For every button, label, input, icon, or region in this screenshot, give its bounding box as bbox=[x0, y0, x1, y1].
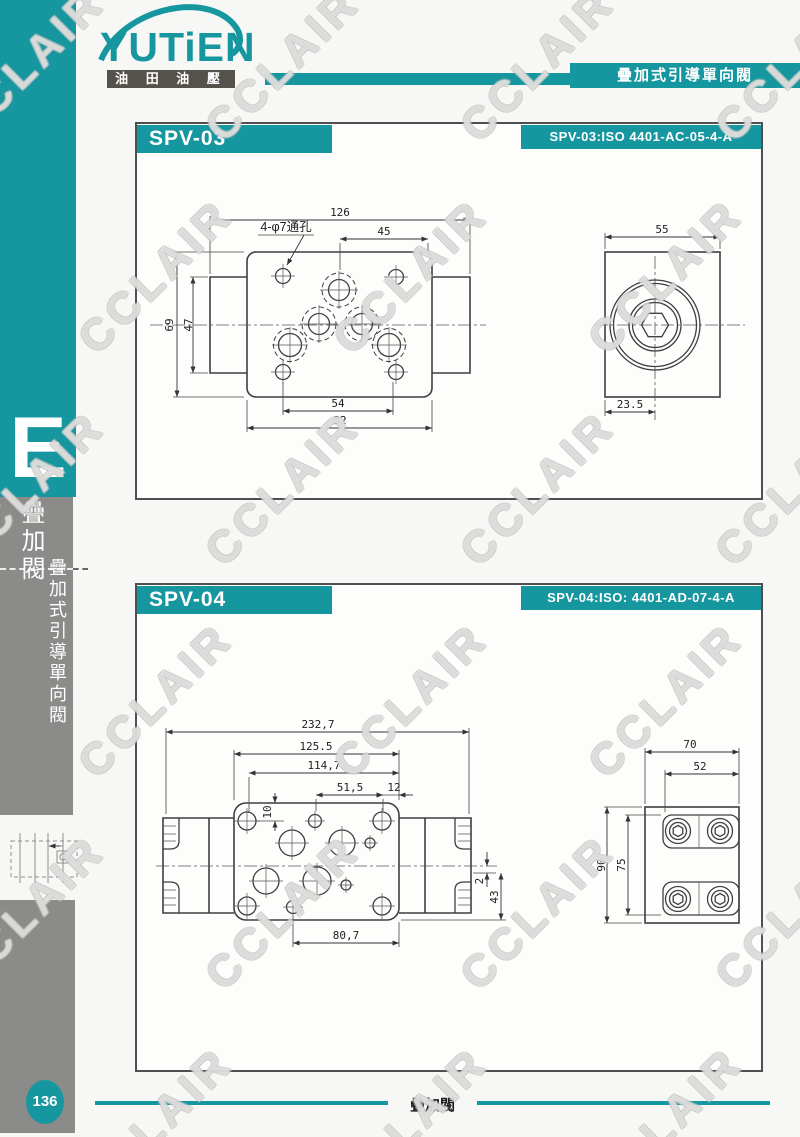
brand-logo: YUTiEN bbox=[100, 24, 256, 71]
page-number-badge: 136 bbox=[26, 1080, 64, 1124]
spv03-title: SPV-03 bbox=[137, 125, 332, 153]
sidebar-category-label: 疊加閥 bbox=[13, 500, 48, 584]
spv04-iso-code: SPV-04:ISO: 4401-AD-07-4-A bbox=[521, 586, 761, 610]
spv04-section-box: SPV-04 SPV-04:ISO: 4401-AD-07-4-A bbox=[135, 583, 763, 1072]
spv03-iso-code: SPV-03:ISO 4401-AC-05-4-A bbox=[521, 125, 761, 149]
footer-label: 疊加閥 bbox=[388, 1094, 477, 1115]
footer-rule-right bbox=[477, 1101, 770, 1105]
section-tab-letter: E bbox=[0, 402, 76, 494]
sidebar-dash-mark bbox=[0, 568, 73, 570]
header-rule bbox=[265, 73, 570, 85]
spv03-section-box: SPV-03 SPV-03:ISO 4401-AC-05-4-A bbox=[135, 122, 763, 500]
footer-rule-left bbox=[95, 1101, 388, 1105]
sidebar-category-sublabel: 疊加式引導單向閥 bbox=[44, 558, 70, 726]
page-topic-banner: 疊加式引導單向閥 bbox=[570, 63, 800, 88]
brand-subtitle: 油 田 油 壓 bbox=[107, 70, 235, 88]
spv04-title: SPV-04 bbox=[137, 586, 332, 614]
sidebar-dash-mark-end bbox=[73, 568, 88, 570]
sidebar-valve-schematic bbox=[11, 833, 77, 883]
catalog-page: E YUTiEN 油 田 油 壓 疊加式引導單向閥 SPV-03 SPV-03:… bbox=[0, 0, 800, 1137]
